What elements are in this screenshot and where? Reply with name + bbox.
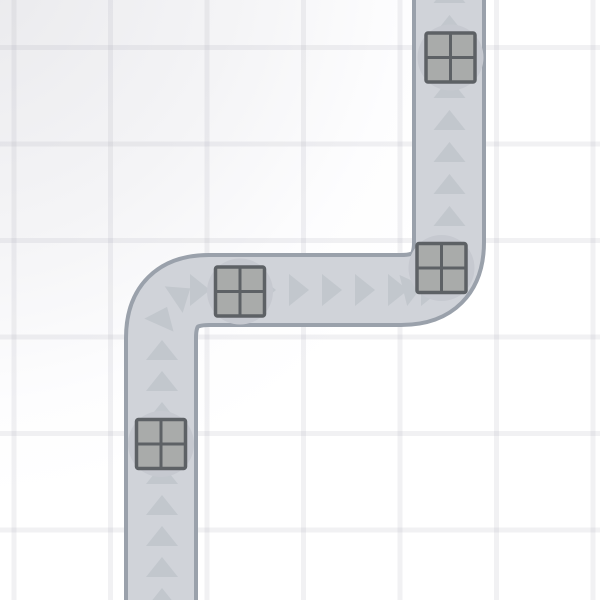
- crate[interactable]: [418, 25, 484, 91]
- map-scene: [0, 0, 600, 600]
- crate[interactable]: [128, 411, 194, 477]
- game-board[interactable]: [0, 0, 600, 600]
- crate[interactable]: [409, 235, 475, 301]
- crate[interactable]: [207, 259, 273, 325]
- direction-arrow-icon: [434, 0, 466, 3]
